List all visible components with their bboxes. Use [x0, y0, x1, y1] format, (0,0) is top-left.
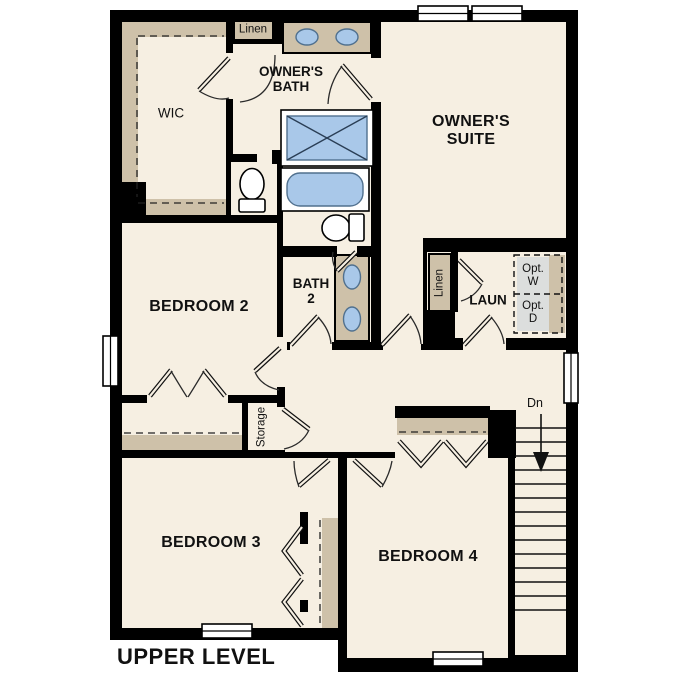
bedroom4-label: BEDROOM 4	[378, 548, 478, 566]
sink-icon	[344, 265, 361, 289]
bathtub-icon	[281, 168, 369, 211]
floor-plan-drawing	[0, 0, 687, 687]
bedroom3-label: BEDROOM 3	[161, 534, 261, 552]
window	[433, 652, 483, 666]
optional-dryer-label: Opt.D	[522, 300, 544, 326]
optional-washer-label: Opt.W	[522, 263, 544, 289]
page-title: UPPER LEVEL	[117, 644, 275, 670]
linen-top-label: Linen	[239, 24, 267, 37]
owners-bath-label: OWNER'SBATH	[259, 64, 323, 94]
bedroom2-closet-shelf	[122, 435, 242, 450]
window	[418, 6, 468, 21]
floor-plan: WIC OWNER'SBATH OWNER'SSUITE BEDROOM 2 B…	[0, 0, 687, 687]
window	[103, 336, 118, 386]
sink-icon	[296, 29, 318, 45]
toilet-icon	[322, 214, 364, 241]
laundry-label: LAUN	[469, 292, 507, 307]
hall-floor	[285, 350, 566, 412]
bedroom2-label: BEDROOM 2	[149, 298, 249, 316]
window	[472, 6, 522, 21]
shower-icon	[281, 110, 373, 166]
stairs-down-label: Dn	[527, 396, 543, 410]
window	[202, 624, 252, 638]
sink-icon	[336, 29, 358, 45]
bedroom3-closet-shelf	[322, 518, 338, 628]
window	[564, 353, 578, 403]
sink-icon	[344, 307, 361, 331]
toilet-icon	[239, 169, 265, 213]
bath2-label: BATH2	[293, 276, 330, 306]
storage-label: Storage	[256, 407, 269, 447]
wic-label: WIC	[158, 105, 184, 120]
owners-suite-label: OWNER'SSUITE	[432, 113, 510, 149]
linen-laundry-label: Linen	[434, 269, 447, 297]
